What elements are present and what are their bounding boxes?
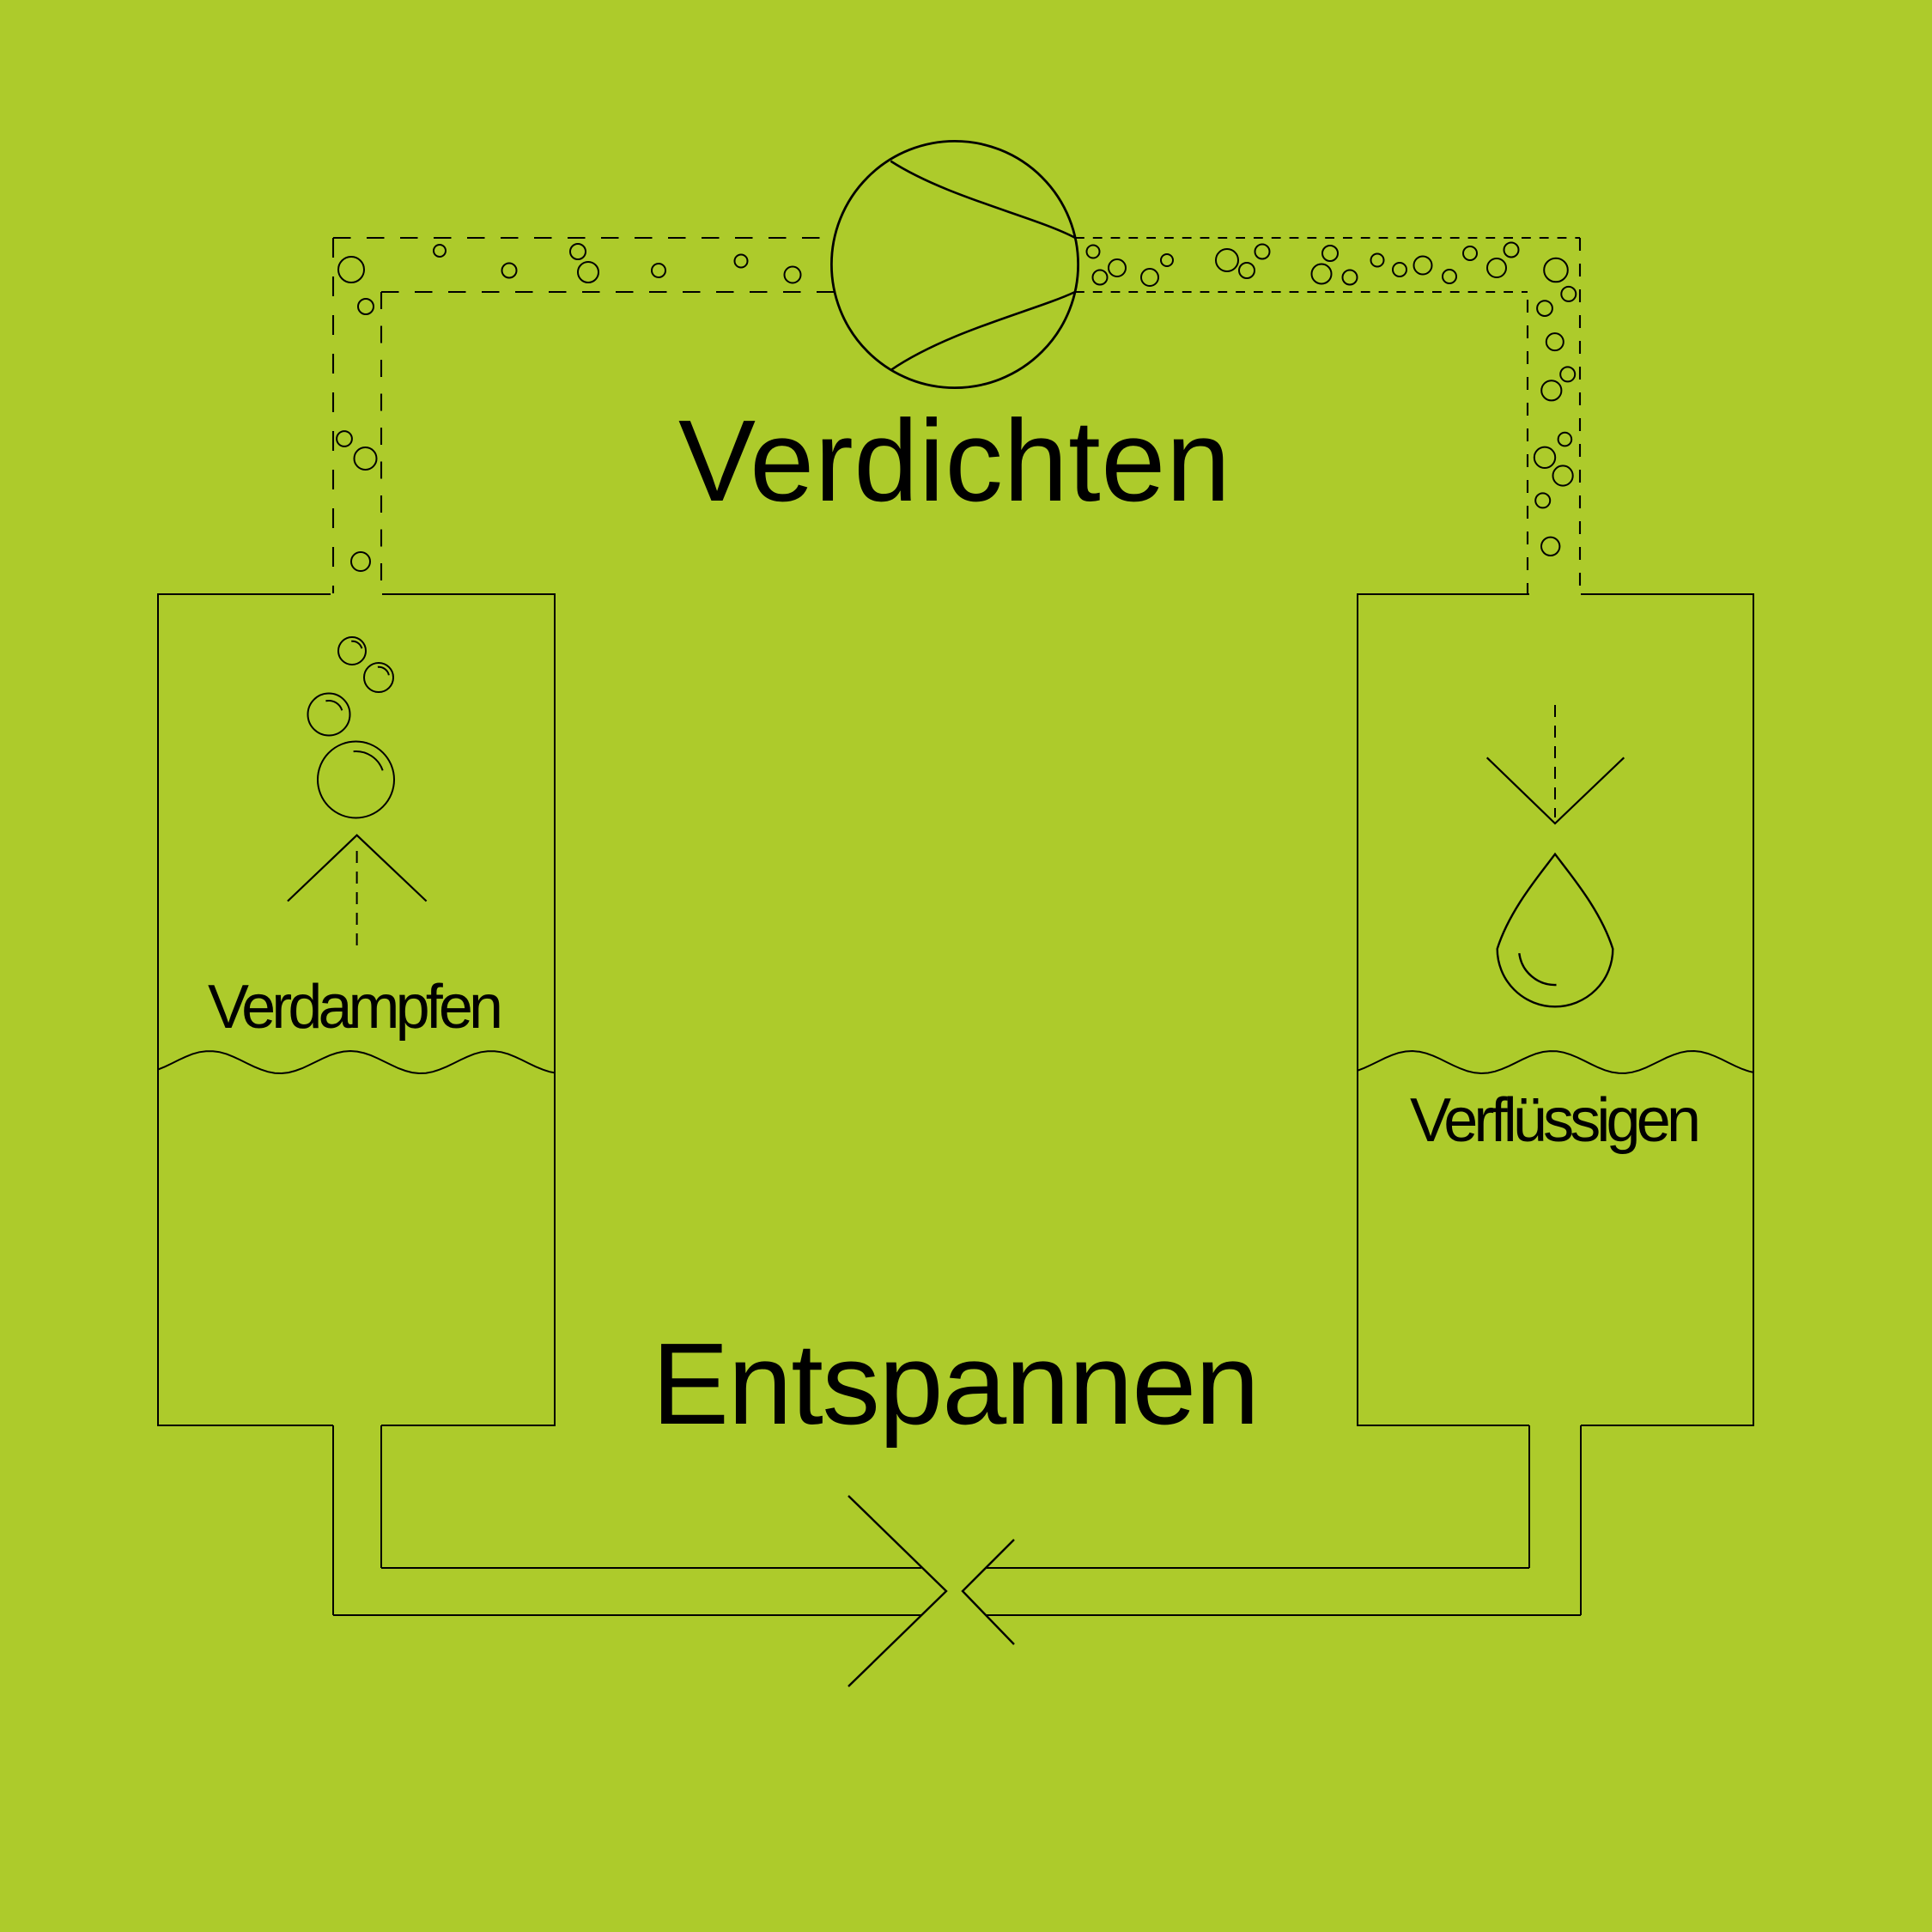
svg-text:Verflüssigen: Verflüssigen [1410,1086,1701,1155]
svg-text:Entspannen: Entspannen [652,1319,1260,1449]
svg-text:Verdampfen: Verdampfen [208,973,503,1042]
svg-text:Verdichten: Verdichten [678,396,1230,526]
